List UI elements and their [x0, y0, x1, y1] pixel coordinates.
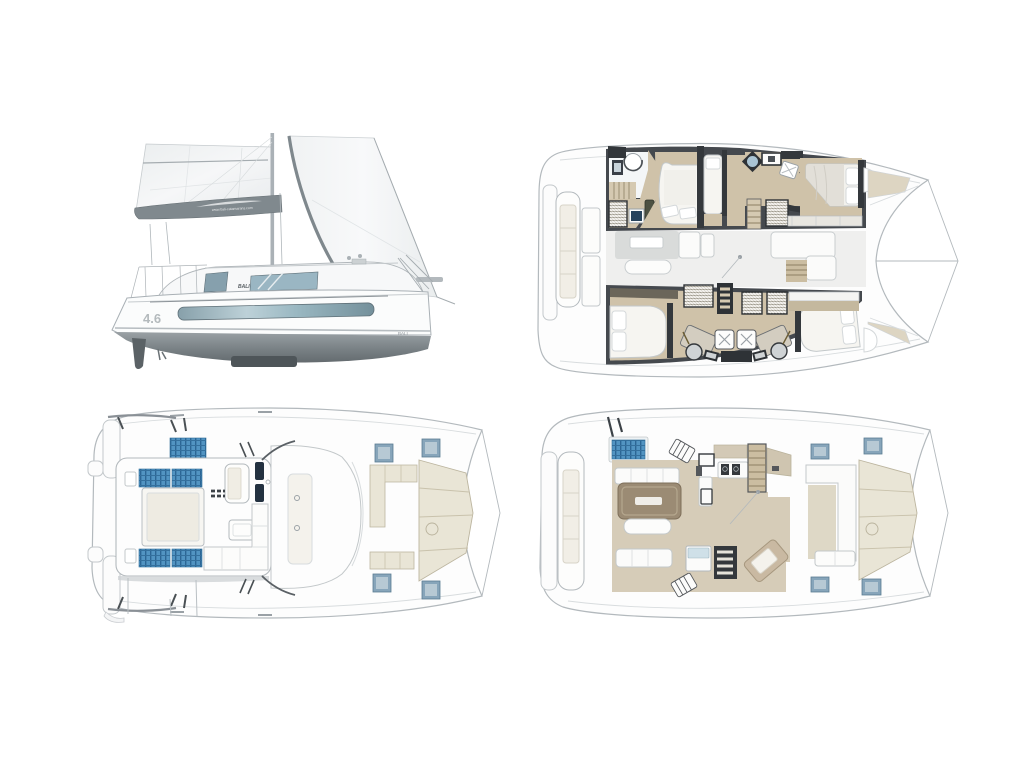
svg-text:BALI: BALI: [238, 284, 250, 290]
svg-text:4.6: 4.6: [143, 311, 161, 326]
svg-text:BALI: BALI: [398, 331, 408, 336]
